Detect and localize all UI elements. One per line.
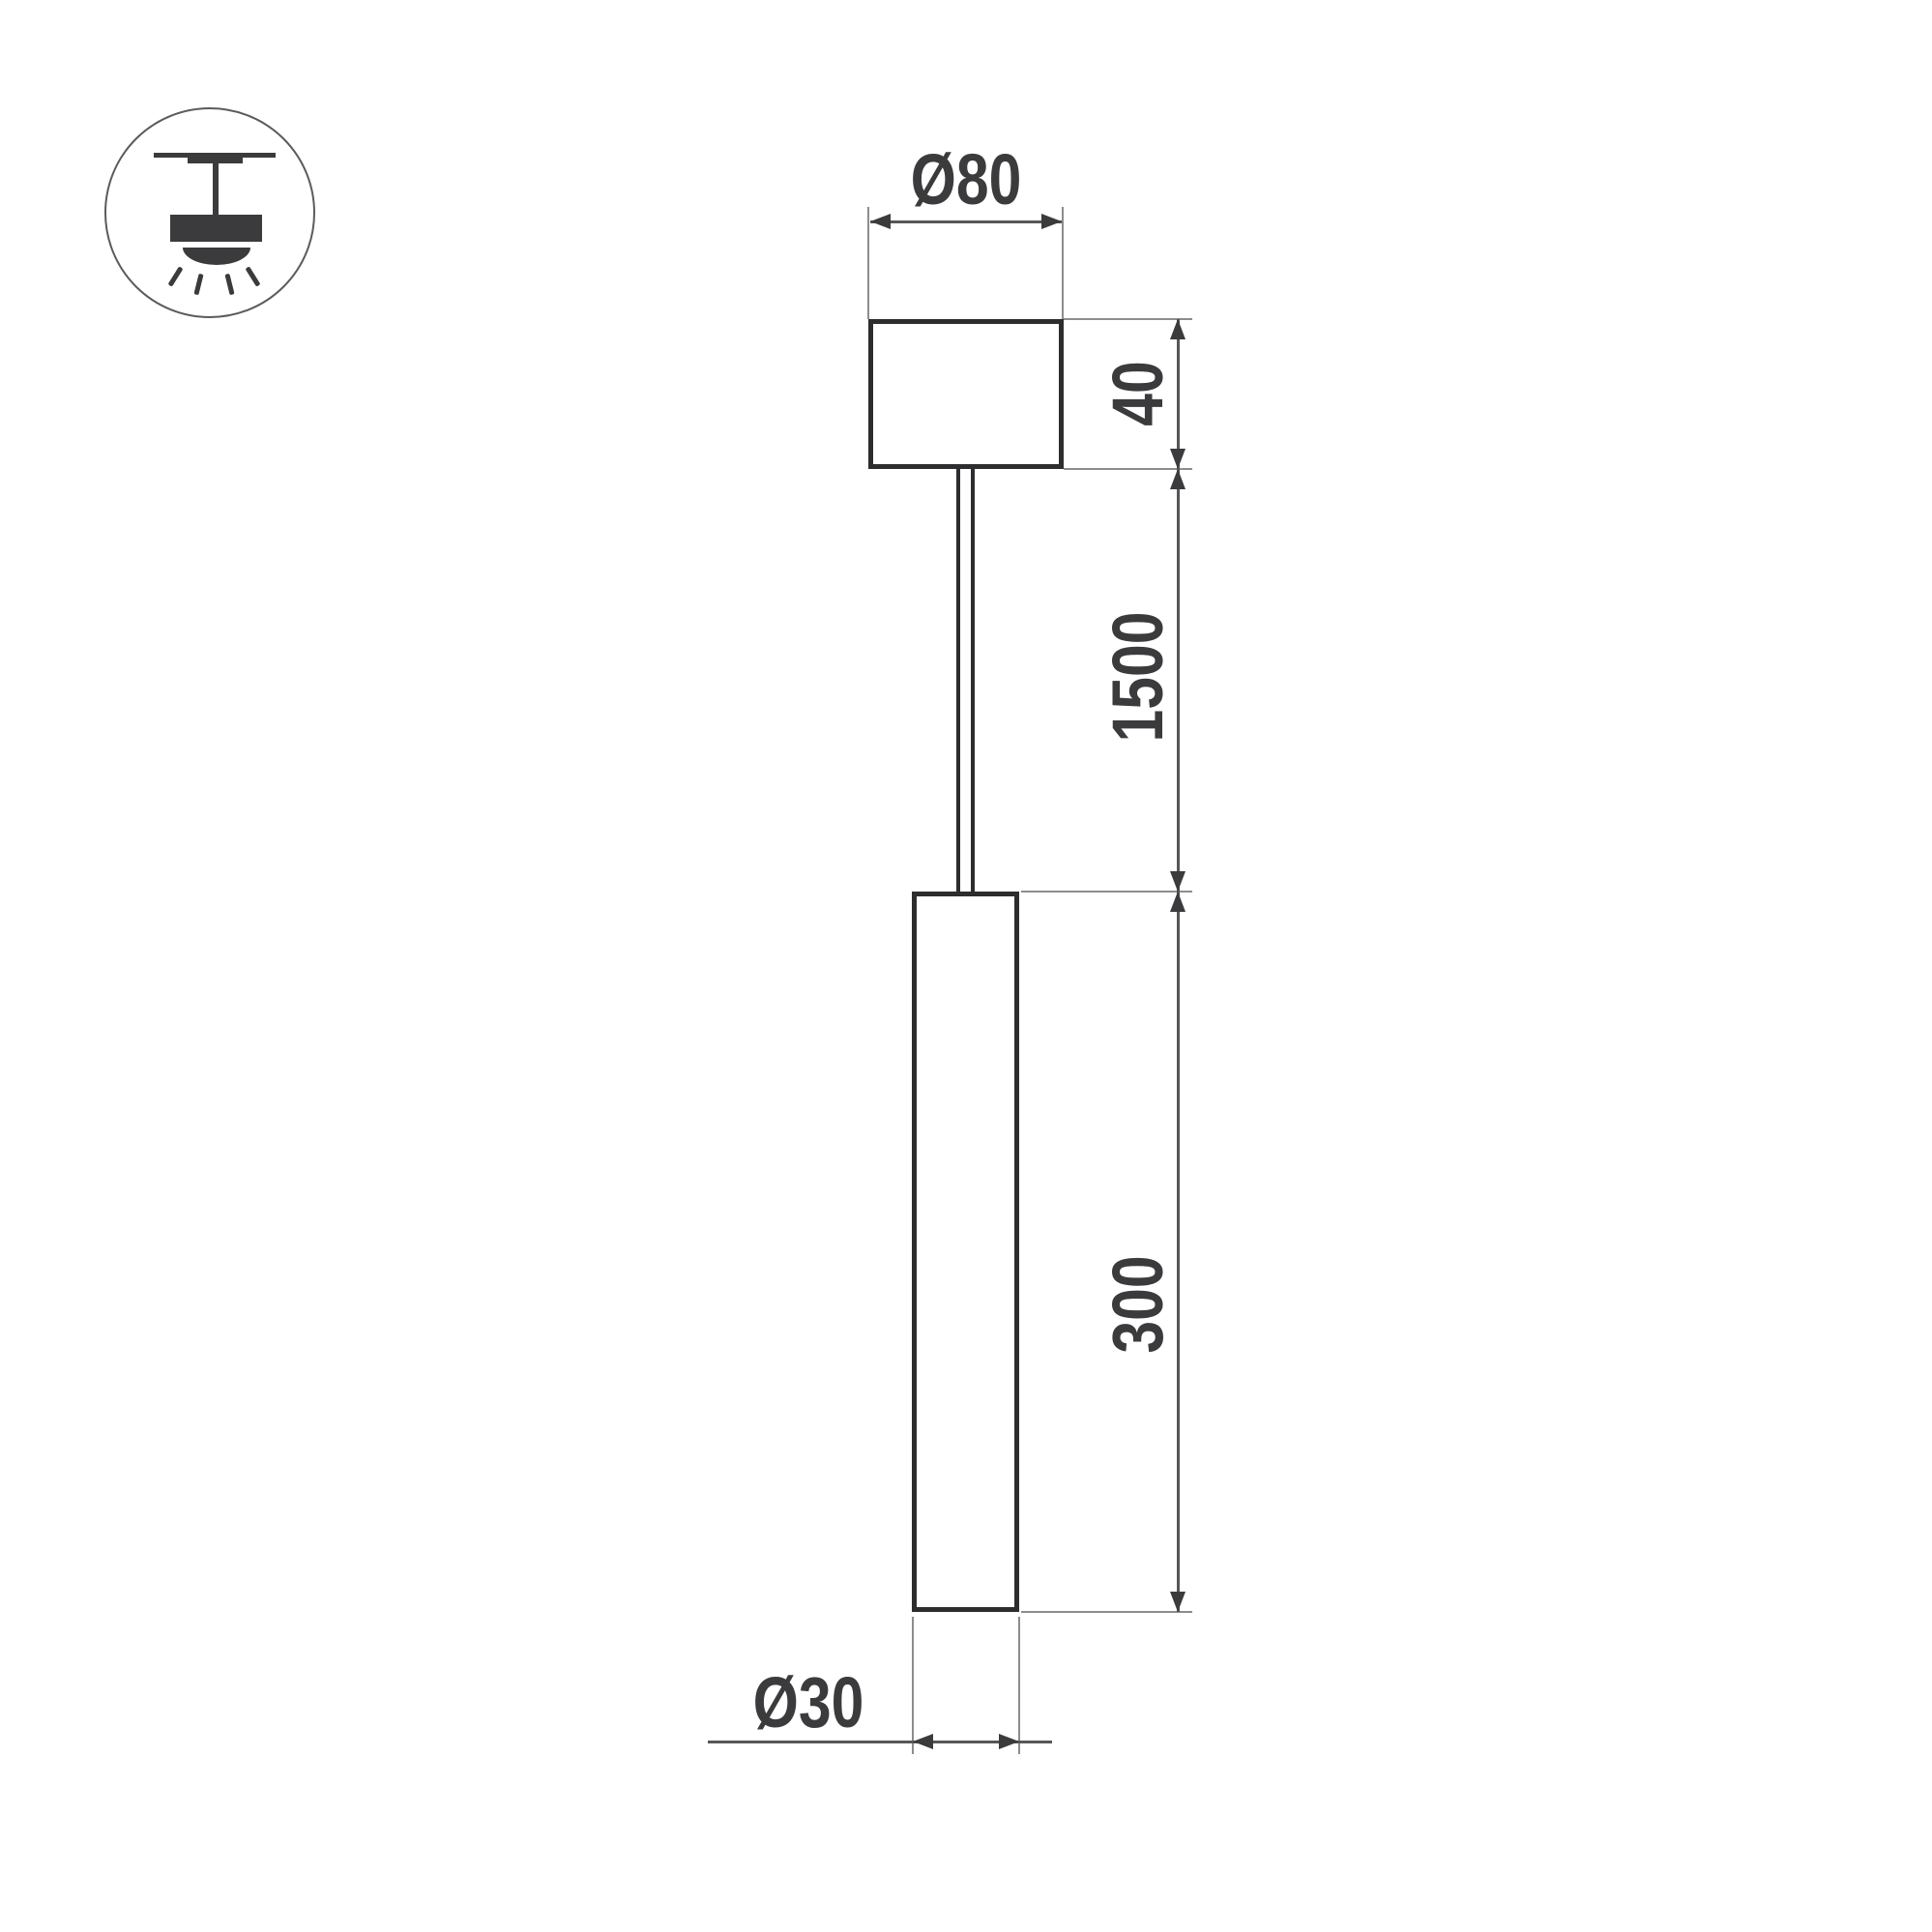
dimension-line — [1177, 319, 1180, 1612]
dimension-line — [870, 220, 1062, 223]
suspension-length-label: 1500 — [1103, 598, 1171, 756]
extension-line — [1021, 891, 1192, 893]
dimension-arrow — [1170, 871, 1186, 892]
dimension-arrow — [1041, 214, 1062, 229]
canopy-diameter-label: Ø80 — [887, 145, 1045, 213]
dimension-arrow — [999, 1734, 1019, 1749]
dimension-arrow — [1170, 319, 1186, 339]
light-ray-icon — [193, 274, 203, 296]
lamp-body-icon — [170, 215, 262, 242]
dimension-arrow — [1170, 892, 1186, 912]
technical-drawing-canvas: Ø80 40 1500 300 Ø30 — [0, 0, 1932, 1932]
dimension-arrow — [1170, 1592, 1186, 1612]
tube-diameter-label: Ø30 — [729, 1668, 888, 1736]
dimension-arrow — [1170, 449, 1186, 469]
light-ray-icon — [224, 274, 234, 296]
lamp-tube-outline — [912, 892, 1019, 1612]
light-dome-icon — [183, 248, 250, 265]
extension-line — [1021, 1611, 1192, 1613]
dimension-arrow — [913, 1734, 933, 1749]
canopy-outline — [868, 319, 1064, 469]
dimension-arrow — [1170, 469, 1186, 489]
canopy-height-label: 40 — [1103, 314, 1171, 473]
light-ray-icon — [246, 266, 261, 286]
ceiling-pendant-icon — [104, 107, 315, 318]
extension-line — [867, 207, 869, 319]
suspension-wire — [956, 469, 975, 892]
extension-line — [1062, 207, 1064, 319]
dimension-arrow — [870, 214, 891, 229]
suspension-rod-icon — [213, 162, 219, 216]
light-ray-icon — [168, 266, 184, 286]
tube-length-label: 300 — [1103, 1225, 1171, 1384]
